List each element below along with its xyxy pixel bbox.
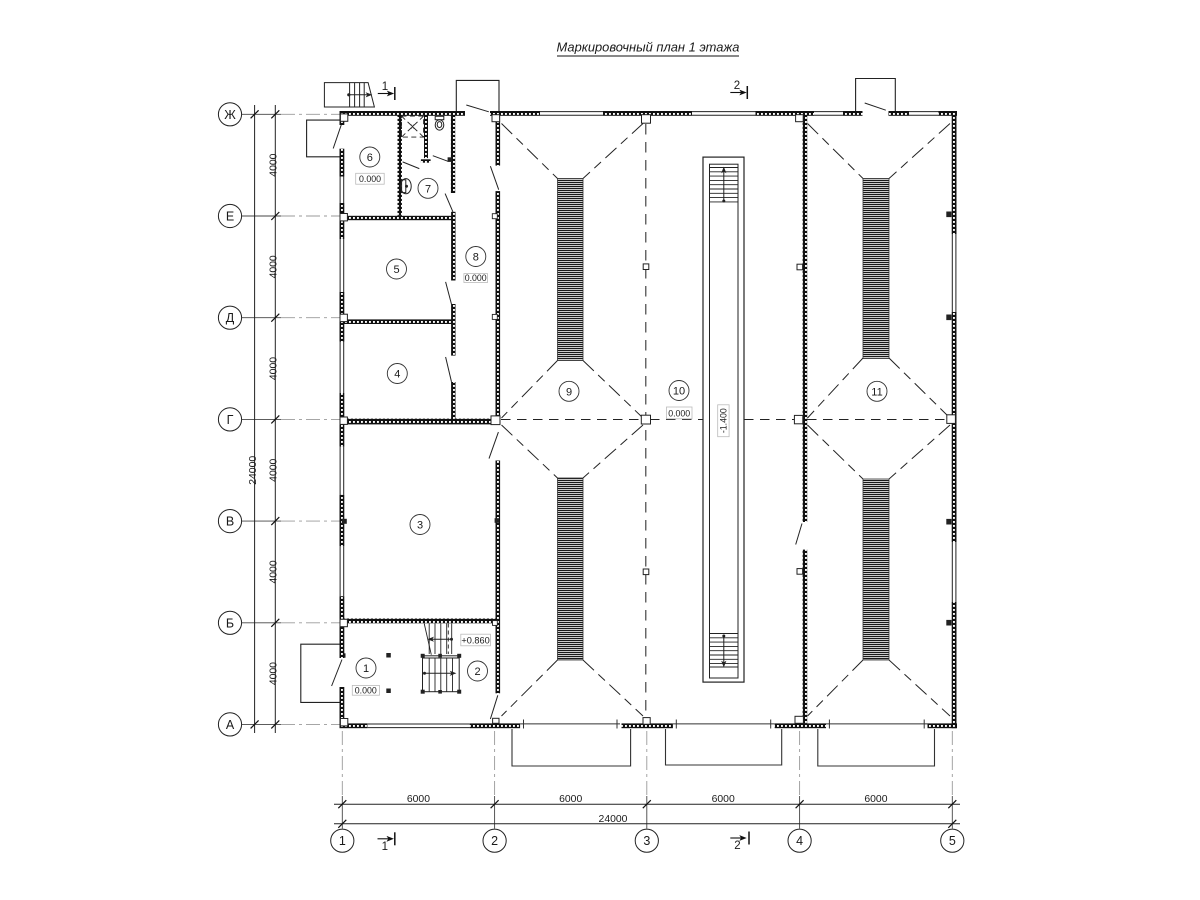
svg-text:24000: 24000 <box>248 456 259 485</box>
svg-text:В: В <box>226 515 234 529</box>
svg-text:2: 2 <box>474 666 480 678</box>
svg-text:-1.400: -1.400 <box>719 408 729 433</box>
svg-text:Маркировочный план 1 этажа: Маркировочный план 1 этажа <box>557 40 740 55</box>
svg-text:3: 3 <box>643 834 650 848</box>
svg-text:4000: 4000 <box>269 560 280 583</box>
svg-text:11: 11 <box>871 386 882 398</box>
svg-text:1: 1 <box>382 81 388 93</box>
svg-text:6000: 6000 <box>559 794 582 805</box>
svg-text:9: 9 <box>566 386 572 398</box>
svg-text:Г: Г <box>227 413 234 427</box>
svg-text:0.000: 0.000 <box>668 408 690 418</box>
svg-text:6: 6 <box>367 152 373 164</box>
svg-text:4000: 4000 <box>269 662 280 685</box>
svg-text:Ж: Ж <box>224 108 236 122</box>
svg-text:2: 2 <box>734 840 740 852</box>
svg-text:1: 1 <box>363 663 369 675</box>
svg-text:0.000: 0.000 <box>355 685 377 695</box>
svg-text:5: 5 <box>949 834 956 848</box>
svg-text:5: 5 <box>393 264 399 276</box>
svg-text:0.000: 0.000 <box>359 174 381 184</box>
svg-text:4000: 4000 <box>269 255 280 278</box>
svg-text:6000: 6000 <box>712 794 735 805</box>
svg-text:А: А <box>226 718 235 732</box>
svg-text:4000: 4000 <box>269 458 280 481</box>
svg-text:6000: 6000 <box>864 794 887 805</box>
svg-text:2: 2 <box>491 834 498 848</box>
svg-text:4000: 4000 <box>269 153 280 176</box>
svg-text:24000: 24000 <box>599 814 628 825</box>
svg-text:4: 4 <box>796 834 803 848</box>
svg-text:4: 4 <box>394 369 400 381</box>
svg-text:3: 3 <box>417 520 423 532</box>
svg-text:2: 2 <box>734 80 740 92</box>
svg-text:+0.860: +0.860 <box>461 635 489 645</box>
svg-text:Д: Д <box>226 311 235 325</box>
svg-text:Е: Е <box>226 210 234 224</box>
svg-text:Б: Б <box>226 616 234 630</box>
svg-text:0.000: 0.000 <box>465 273 487 283</box>
svg-text:1: 1 <box>339 834 346 848</box>
svg-text:10: 10 <box>673 386 685 398</box>
svg-text:7: 7 <box>425 183 431 195</box>
svg-text:8: 8 <box>473 252 479 264</box>
svg-text:1: 1 <box>382 841 388 853</box>
svg-text:4000: 4000 <box>269 357 280 380</box>
svg-text:6000: 6000 <box>407 794 430 805</box>
